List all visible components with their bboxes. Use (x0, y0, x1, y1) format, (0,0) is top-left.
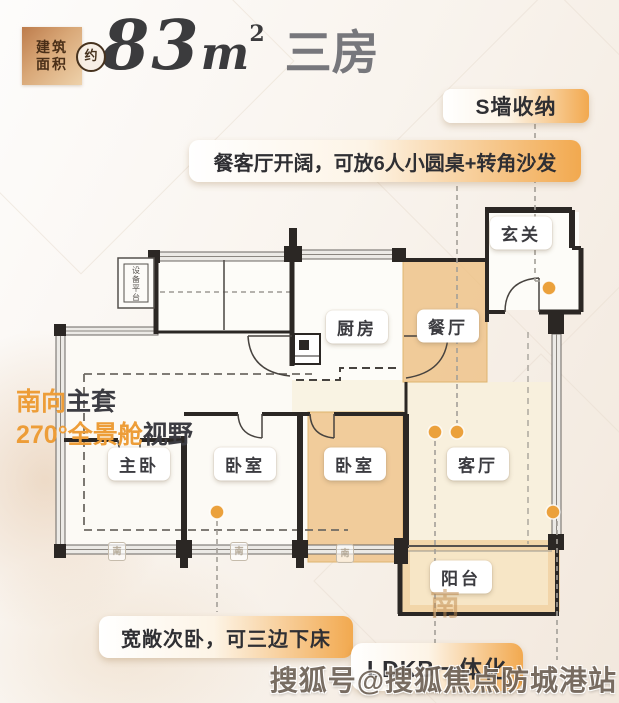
south-marker-icon: 南 (336, 544, 354, 563)
equipment-platform-label: 设备平台 (122, 263, 150, 305)
corridor-floor (292, 380, 406, 414)
room-label-entry: 玄关 (490, 217, 552, 250)
annotation-line1: 南向主套 (16, 386, 193, 419)
annotation-line2: 270°全景舱视野 (16, 419, 193, 452)
callout-s-wall-storage: S墙收纳 (443, 89, 589, 123)
area-badge-line2: 面积 (36, 56, 68, 73)
room-label-bedroom-1: 卧室 (214, 448, 276, 481)
area-badge: 建筑 面积 (22, 27, 82, 85)
room-label-master-bedroom: 主卧 (108, 448, 170, 481)
room-label-living: 客厅 (447, 448, 509, 481)
page-title: 83m2三房 (102, 6, 379, 86)
callout-dining-living: 餐客厅开阔，可放6人小圆桌+转角沙发 (189, 140, 581, 182)
area-badge-line1: 建筑 (36, 39, 68, 56)
annotation-line2-rest: 视野 (143, 421, 193, 449)
floorplan-poster: 建筑 面积 约 83m2三房 (0, 0, 619, 703)
area-unit: m (201, 26, 250, 80)
rooms-count-text: 三房 (285, 26, 379, 81)
south-facing-annotation: 南向主套 270°全景舱视野 (16, 386, 193, 452)
annotation-line1-rest: 主套 (66, 388, 116, 416)
area-superscript: 2 (249, 21, 264, 47)
room-label-dining: 餐厅 (417, 310, 479, 343)
south-marker-icon: 南 (230, 542, 248, 561)
room-label-bedroom-2: 卧室 (324, 448, 386, 481)
area-value: 83 (102, 6, 201, 86)
annotation-line1-accent: 南向 (16, 388, 66, 416)
kitchen-fixture (294, 334, 320, 364)
south-marker-icon: 南 (108, 542, 126, 561)
watermark-text: 搜狐号@搜狐焦点防城港站 (270, 659, 617, 699)
approx-circle: 约 (76, 42, 106, 72)
room-label-kitchen: 厨房 (326, 311, 388, 344)
callout-secondary-bedroom: 宽敞次卧，可三边下床 (99, 616, 353, 658)
annotation-line2-accent: 270°全景舱 (16, 421, 143, 449)
south-marker-large: 南 (430, 580, 460, 624)
